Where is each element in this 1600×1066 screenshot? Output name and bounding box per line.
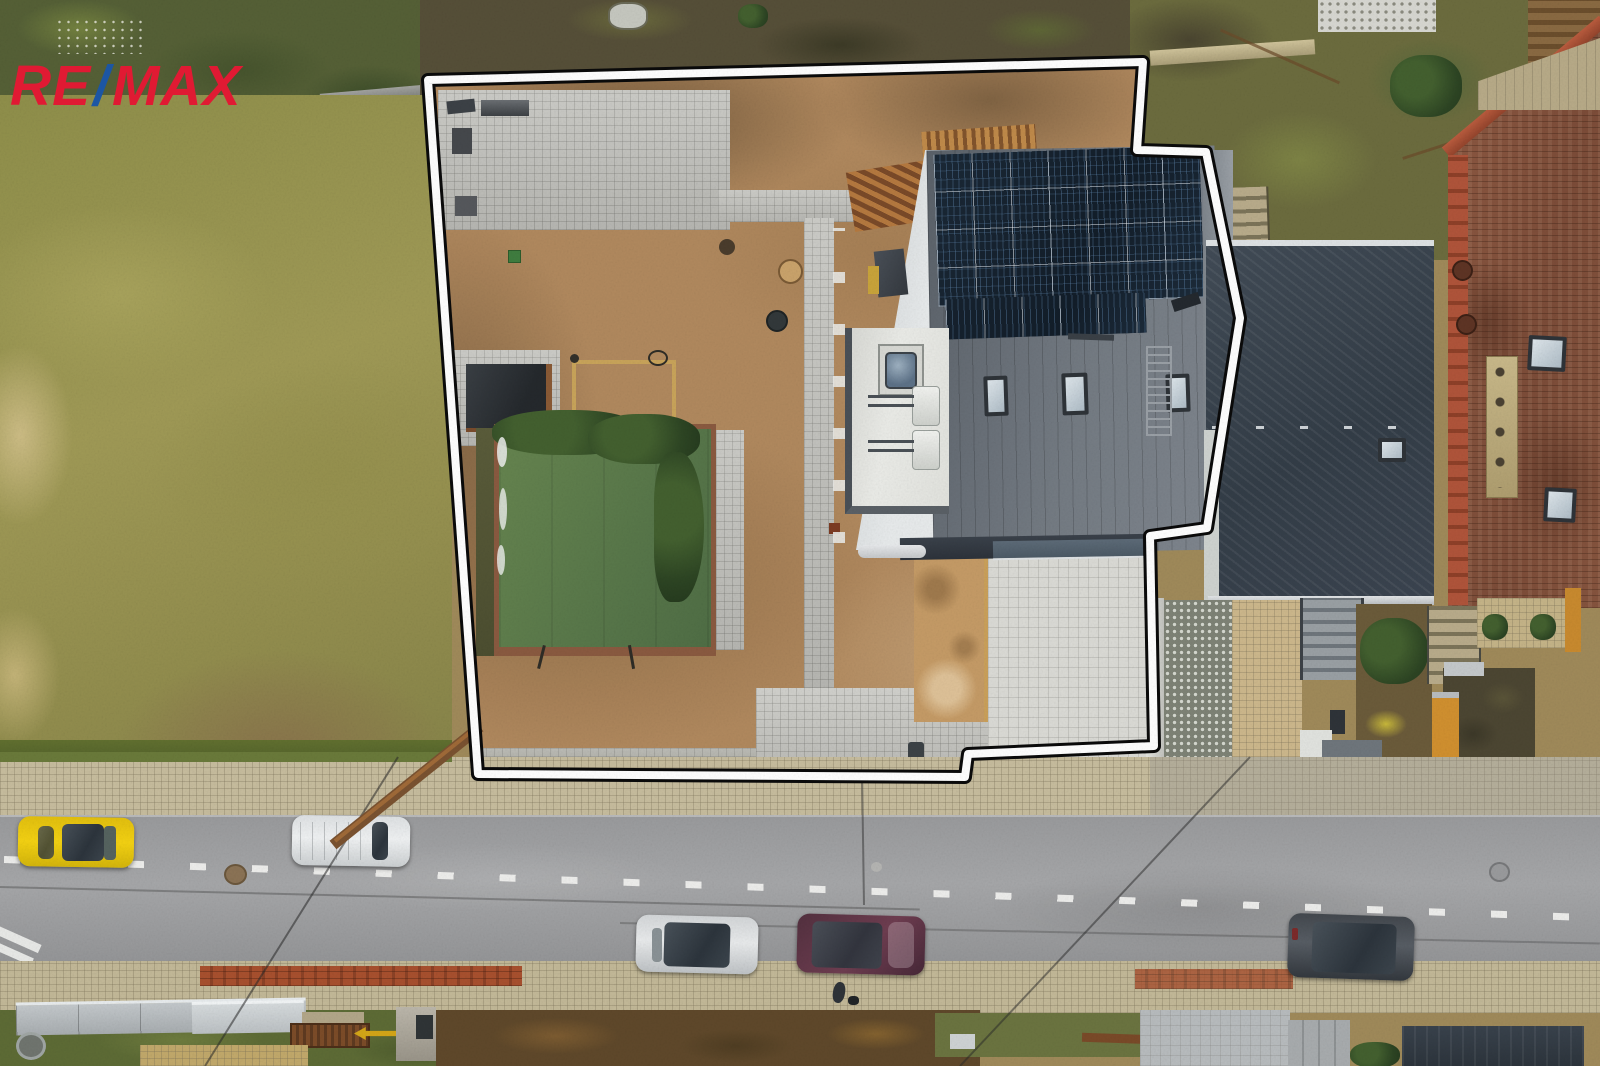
remax-logo: RE/MAX: [10, 58, 242, 115]
logo-re: RE: [10, 54, 91, 118]
grain-overlay: [0, 0, 1600, 1066]
aerial-property-photo: RE/MAX: [0, 0, 1600, 1066]
logo-slash: /: [91, 54, 112, 118]
logo-max: MAX: [112, 54, 242, 118]
